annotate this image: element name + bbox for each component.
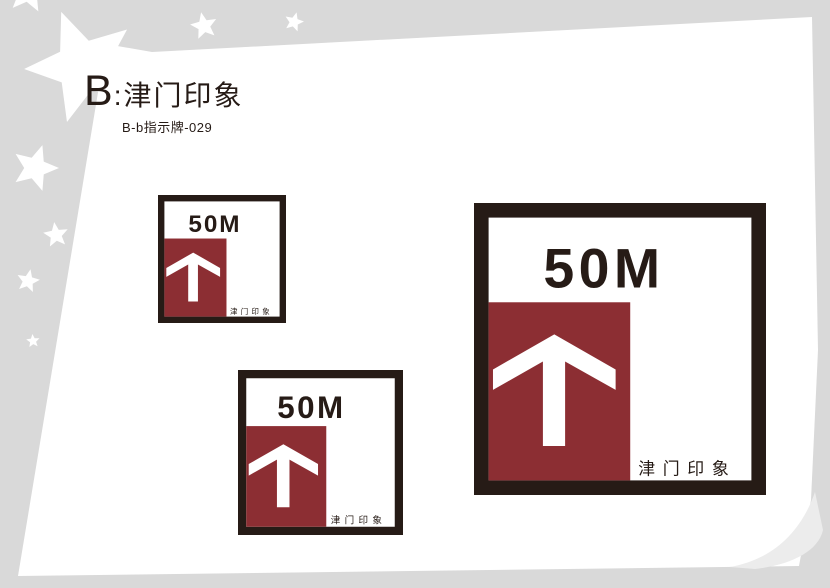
star-icon [15,267,42,293]
brand-label: 津 门 印 象 [331,514,383,526]
sign-medium: 50M 津 门 印 象 [238,370,403,535]
page-title: B:津门印象 [84,70,243,113]
title-name: :津门印象 [114,80,244,111]
design-sheet-page: B:津门印象 B-b指示牌-029 50M 津 门 印 象 50M 津 门 印 … [0,0,830,588]
star-icon [283,10,306,32]
distance-label: 50M [543,238,664,300]
title-prefix: B [84,67,114,115]
sign-large: 50M 津 门 印 象 [474,203,766,495]
star-icon [7,138,64,193]
sign-small: 50M 津 门 印 象 [158,195,286,323]
star-icon [26,333,40,347]
page-subtitle: B-b指示牌-029 [122,117,212,136]
brand-label: 津 门 印 象 [230,306,270,316]
brand-label: 津 门 印 象 [638,460,730,479]
distance-label: 50M [277,390,345,425]
distance-label: 50M [188,211,241,238]
star-icon [188,10,219,40]
star-icon [42,220,70,247]
star-icon [5,0,52,13]
